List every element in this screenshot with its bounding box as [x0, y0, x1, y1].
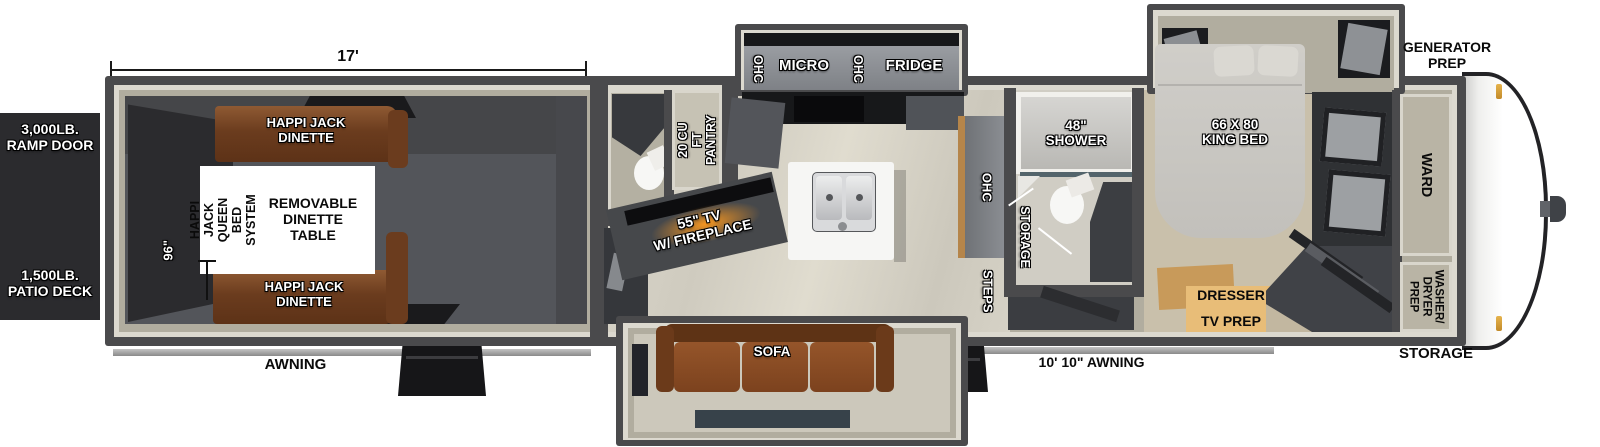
counter-ohc-label: OHC [968, 158, 1004, 216]
ramp-door-label: 3,000LB. RAMP DOOR [0, 122, 100, 153]
patio-deck-label: 1,500LB. PATIO DECK [0, 268, 100, 299]
steps-label: STEPS [974, 248, 1000, 334]
garage-width-text: 96" [162, 237, 177, 263]
garage-side-shade [556, 96, 587, 324]
shower-text: 48" SHOWER [1021, 118, 1131, 148]
garage-width-tick-v [206, 260, 208, 300]
wardrobe-mirror-bottom [1323, 169, 1390, 236]
sink-drain-right [856, 194, 863, 201]
sofa-cushion-3 [810, 342, 874, 392]
kitchen-ohc-left: OHC [748, 50, 768, 88]
king-bed-text: 66 X 80 KING BED [1175, 117, 1295, 147]
counter-ohc-text: OHC [979, 169, 994, 205]
storage-label: STORAGE [1394, 346, 1478, 363]
fridge-label: FRIDGE [870, 58, 958, 75]
kitchen-ohc-right-text: OHC [851, 55, 865, 83]
dinette-rear-arm [386, 232, 408, 324]
cooktop [794, 96, 864, 122]
kitchen-ohc-left-text: OHC [751, 55, 765, 83]
dresser-label: DRESSER [1186, 288, 1276, 304]
floorplan: 3,000LB. RAMP DOOR 1,500LB. PATIO DECK 1… [0, 0, 1600, 447]
hitch-pin [1550, 196, 1566, 222]
main-awning-label: 10' 10" AWNING [1024, 355, 1159, 371]
pantry-label: 20 CU FT PANTRY [670, 92, 724, 188]
washer-dryer-text: WASHER/ DRYER PREP [1407, 270, 1444, 324]
front-cap [1462, 72, 1548, 350]
sofa-back [664, 324, 892, 342]
dinette-front-label: HAPPI JACK DINETTE [225, 116, 387, 145]
bed-pillow-left [1213, 45, 1255, 77]
kitchen-side-cabinet [725, 97, 786, 168]
kitchen-cabinet-top [744, 33, 959, 46]
marker-light-bottom [1496, 316, 1502, 331]
kitchen-ohc-right: OHC [848, 50, 868, 88]
garage-length-label: 17' [319, 48, 377, 66]
queen-bed-system-label: HAPPI JACK QUEEN BED SYSTEM [192, 168, 254, 272]
wardrobe-mirror-top [1320, 107, 1386, 166]
garage-width-tick-h [198, 260, 216, 262]
washer-dryer-compartment: WASHER/ DRYER PREP [1400, 262, 1452, 332]
king-bed-seam [1158, 84, 1302, 86]
bath-storage-label: STORAGE [1012, 188, 1038, 286]
bedroom-window-right-glass [1340, 23, 1387, 75]
marker-light-top [1496, 84, 1502, 99]
bed-pillow-right [1257, 45, 1299, 77]
dinette-rear-label: HAPPI JACK DINETTE [223, 280, 385, 309]
garage-width-dim: 96" [156, 228, 182, 272]
steps-text: STEPS [980, 270, 995, 313]
wardrobe-compartment: WARD [1400, 94, 1452, 256]
generator-prep-label: GENERATOR PREP [1392, 40, 1502, 71]
fridge-cabinet [906, 96, 964, 130]
sofa-arm-left [656, 326, 674, 392]
entry-step-rear-tread [406, 356, 478, 359]
rear-awning-label: AWNING [248, 357, 343, 374]
dinette-front-arm [388, 110, 408, 168]
micro-label: MICRO [772, 58, 836, 75]
sofa-label: SOFA [728, 344, 816, 359]
dresser-card: DRESSER TV PREP [1186, 286, 1276, 332]
ward-text: WARD [1418, 149, 1434, 201]
pantry-text: 20 CU FT PANTRY [676, 113, 718, 167]
bath-storage-text: STORAGE [1018, 206, 1032, 268]
shower: 48" SHOWER [1016, 92, 1136, 174]
living-rug [695, 410, 850, 428]
rear-awning-bar [113, 349, 591, 356]
island-shadow [894, 170, 906, 262]
queen-bed-system-text: HAPPI JACK QUEEN BED SYSTEM [188, 189, 258, 251]
sofa-slide-window [632, 344, 648, 396]
tv-prep-label: TV PREP [1186, 314, 1276, 330]
king-bed-label: 66 X 80 KING BED [1175, 110, 1295, 154]
garage-length-dim-line [111, 69, 587, 71]
counter-wood-edge [958, 116, 965, 258]
bath-right-wall [1132, 88, 1144, 297]
sink-faucet [838, 222, 847, 231]
removable-table-label: REMOVABLE DINETTE TABLE [254, 180, 372, 260]
sofa-arm-right [876, 326, 894, 392]
sink-drain-left [826, 194, 833, 201]
